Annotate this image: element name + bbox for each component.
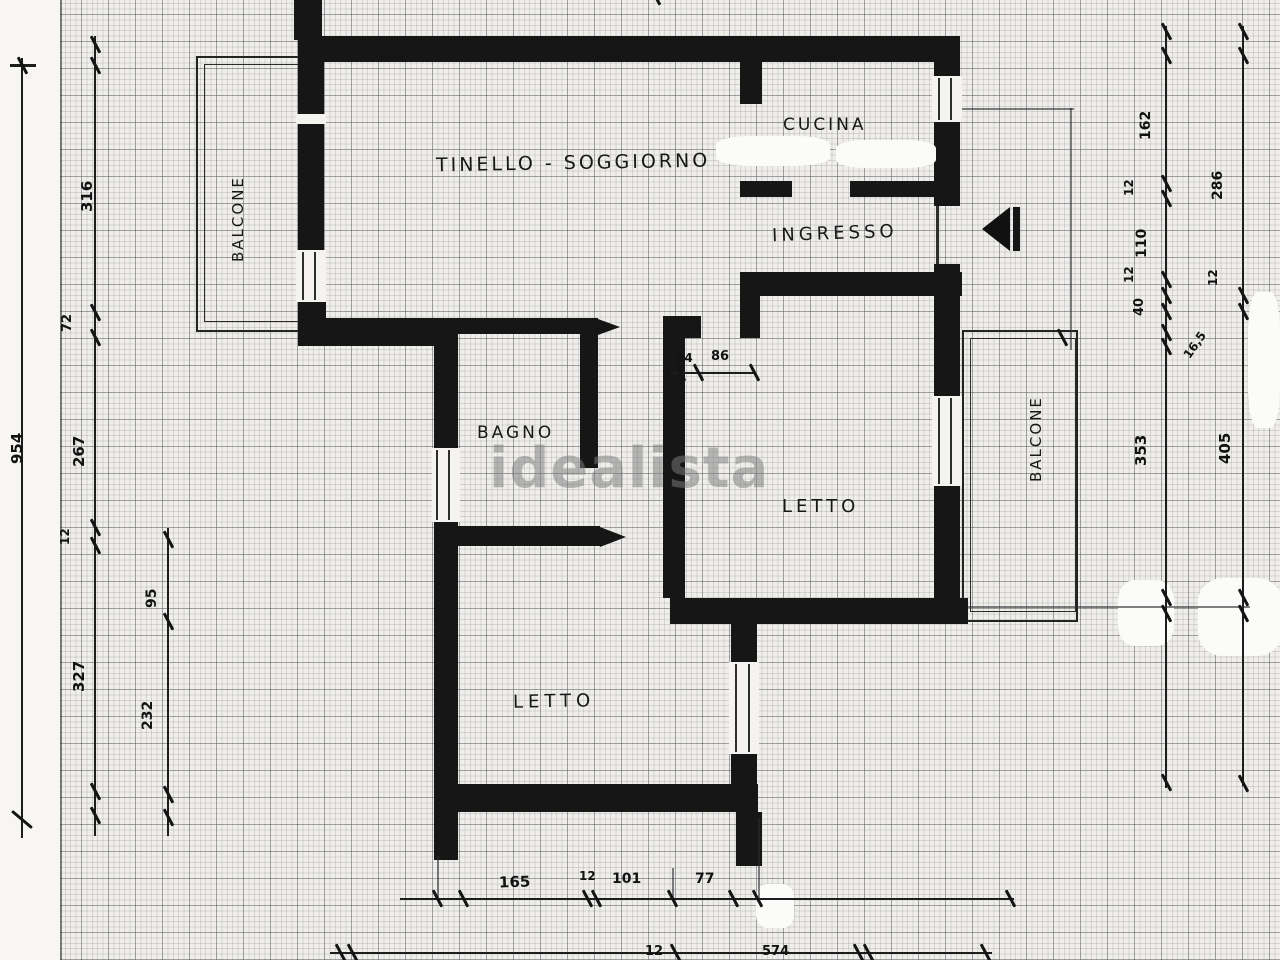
whiteout-patch xyxy=(1248,292,1280,428)
window-line xyxy=(950,78,952,120)
wall-segment xyxy=(731,624,757,662)
room-label-letto-bottom: LETTO xyxy=(513,690,596,712)
window-line xyxy=(436,450,438,520)
dim-label-cut: 12 xyxy=(645,944,663,959)
window-line xyxy=(448,450,450,520)
wall-segment xyxy=(934,122,960,206)
wall-segment xyxy=(934,486,960,602)
door-swing-tip xyxy=(600,527,626,547)
dim-label: 12 xyxy=(579,869,596,883)
dim-label: 110 xyxy=(1134,229,1150,258)
dim-label: 95 xyxy=(144,589,160,608)
wall-segment xyxy=(934,264,960,302)
room-label-tinello-soggiorno: TINELLO - SOGGIORNO xyxy=(436,150,711,177)
window-line xyxy=(302,252,304,300)
window xyxy=(296,114,326,124)
room-label-balcone-left: BALCONE xyxy=(229,176,247,262)
entrance-door-line xyxy=(936,206,939,264)
wall-segment xyxy=(663,316,701,338)
dim-label-total-left: 954 xyxy=(8,433,26,464)
entrance-arrow-bar xyxy=(1013,207,1020,251)
dim-label: 24 xyxy=(676,351,693,365)
window xyxy=(932,396,962,486)
dim-label: 316 xyxy=(78,181,96,212)
extension-line xyxy=(1070,108,1072,350)
dim-label: 165 xyxy=(499,872,531,891)
dim-label: 286 xyxy=(1210,171,1226,200)
dim-label: 16,5 xyxy=(1181,329,1209,361)
wall-segment xyxy=(456,784,758,812)
window xyxy=(729,662,759,754)
dim-label: 232 xyxy=(140,701,156,730)
dimension-line xyxy=(1165,26,1167,788)
paper-edge-line xyxy=(60,0,62,960)
wall-segment xyxy=(740,181,792,197)
tick-mark xyxy=(650,0,662,6)
window-line xyxy=(748,664,750,752)
room-label-cucina: CUCINA xyxy=(783,115,867,135)
floor-plan-scan: TINELLO - SOGGIORNO CUCINA INGRESSO BAGN… xyxy=(0,0,1280,960)
window-line xyxy=(950,398,952,484)
dim-label: 405 xyxy=(1216,433,1234,464)
balcony-right-inner-line xyxy=(970,338,1076,612)
whiteout-patch xyxy=(716,136,830,166)
dimension-line xyxy=(1242,26,1244,786)
wall-segment xyxy=(740,290,760,338)
dim-label: 12 xyxy=(1206,269,1220,286)
dim-label-cut: 574 xyxy=(762,944,789,959)
extension-line xyxy=(962,108,1074,110)
wall-segment xyxy=(298,318,450,346)
dim-label: 86 xyxy=(711,349,729,364)
dim-label: 353 xyxy=(1132,435,1150,466)
wall-segment xyxy=(450,318,598,334)
dim-label: 40 xyxy=(1132,298,1147,316)
dim-label: 72 xyxy=(60,314,75,332)
dim-label: 12 xyxy=(1122,266,1136,283)
room-label-letto-right: LETTO xyxy=(782,496,859,517)
dim-label: 12 xyxy=(1122,179,1136,196)
window-line xyxy=(314,252,316,300)
entrance-arrow-icon xyxy=(982,207,1010,251)
wall-segment xyxy=(434,318,458,448)
paper-margin-left xyxy=(0,0,60,960)
wall-segment xyxy=(294,0,322,40)
watermark-text: idealista xyxy=(489,436,769,501)
wall-segment xyxy=(298,124,324,250)
dim-label: 162 xyxy=(1138,111,1154,140)
wall-segment xyxy=(300,36,958,62)
wall-segment xyxy=(298,36,324,114)
window-line xyxy=(938,398,940,484)
dim-label: 267 xyxy=(70,436,88,467)
wall-segment xyxy=(934,302,960,396)
wall-segment xyxy=(740,272,962,296)
window-line xyxy=(735,664,737,752)
wall-segment xyxy=(670,598,968,624)
whiteout-patch xyxy=(836,140,936,168)
wall-segment xyxy=(452,526,600,546)
wall-segment xyxy=(740,62,762,104)
window xyxy=(296,250,326,302)
extension-line xyxy=(758,818,760,900)
door-swing-tip xyxy=(598,319,620,335)
window-line xyxy=(938,78,940,120)
room-label-ingresso: INGRESSO xyxy=(772,221,898,246)
wall-segment xyxy=(434,522,458,860)
dim-label: 77 xyxy=(695,871,714,887)
dim-label: 327 xyxy=(70,661,88,692)
dim-label: 101 xyxy=(612,871,641,887)
dimension-line xyxy=(94,36,96,836)
wall-segment xyxy=(850,181,936,197)
extension-line xyxy=(437,856,439,900)
wall-segment xyxy=(934,36,960,76)
balcony-left-inner-line xyxy=(204,64,300,322)
room-label-balcone-right: BALCONE xyxy=(1027,396,1045,482)
window xyxy=(932,76,962,122)
extension-line xyxy=(968,606,1250,608)
dim-label: 12 xyxy=(58,528,72,545)
dimension-line xyxy=(400,898,1014,900)
